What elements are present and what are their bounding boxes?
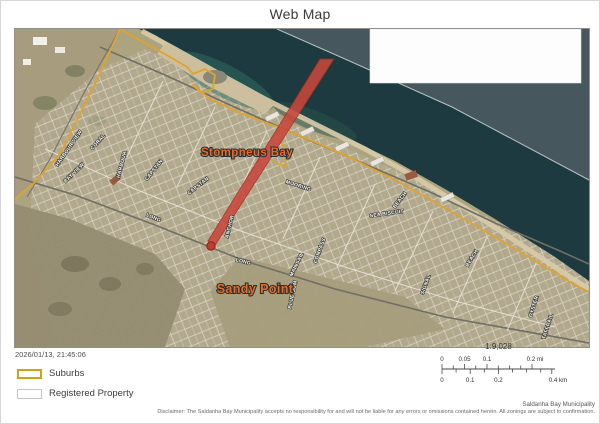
place-label: Stompneus Bay bbox=[201, 147, 293, 159]
legend-item-registered-property: Registered Property bbox=[17, 387, 133, 400]
vegetation bbox=[33, 96, 57, 110]
km-tick-0: 0 bbox=[440, 377, 444, 384]
registered-property-swatch bbox=[17, 389, 42, 399]
scale-bar-mi-ticks bbox=[442, 364, 532, 369]
scale-bar-km-ticks bbox=[442, 369, 552, 374]
building bbox=[33, 37, 47, 45]
building bbox=[23, 59, 31, 65]
export-page: Web Map bbox=[0, 0, 600, 424]
km-tick-1: 0.1 bbox=[466, 377, 475, 384]
mi-tick-2: 0.1 bbox=[483, 356, 492, 363]
export-timestamp: 2026/01/13, 21:45:06 bbox=[15, 350, 86, 359]
scale-ratio: 1:9,028 bbox=[426, 342, 571, 351]
km-tick-2: 0.2 bbox=[494, 377, 503, 384]
no-imagery-patch bbox=[370, 29, 581, 83]
km-tick-3: 0.4 km bbox=[549, 377, 568, 384]
rocks bbox=[99, 277, 121, 291]
mi-tick-3: 0.2 mi bbox=[527, 356, 544, 363]
place-label: Sandy Point bbox=[217, 282, 294, 296]
suburbs-swatch bbox=[17, 369, 42, 379]
legend-label-registered-property: Registered Property bbox=[49, 388, 133, 399]
rocks bbox=[61, 256, 89, 272]
legend-item-suburbs: Suburbs bbox=[17, 367, 84, 380]
building bbox=[55, 47, 65, 53]
legend-label-suburbs: Suburbs bbox=[49, 368, 84, 379]
map-frame: HARBOUR VIEWCORALBAY VIEWHARBOURCAPSTANC… bbox=[14, 28, 590, 348]
rocks bbox=[136, 263, 154, 275]
map-canvas[interactable]: HARBOUR VIEWCORALBAY VIEWHARBOURCAPSTANC… bbox=[15, 29, 589, 347]
mi-tick-1: 0.05 bbox=[458, 356, 471, 363]
disclaimer-text: Disclaimer: The Saldanha Bay Municipalit… bbox=[35, 409, 595, 415]
page-title: Web Map bbox=[1, 6, 599, 22]
selection-marker bbox=[207, 242, 215, 250]
mi-tick-0: 0 bbox=[440, 356, 444, 363]
scale-bar: 0 0.05 0.1 0.2 mi 0 0.1 0.2 0.4 km bbox=[426, 352, 596, 386]
credit-line: Saldanha Bay Municipality bbox=[522, 401, 595, 408]
rocks bbox=[48, 302, 72, 316]
vegetation bbox=[65, 65, 85, 77]
